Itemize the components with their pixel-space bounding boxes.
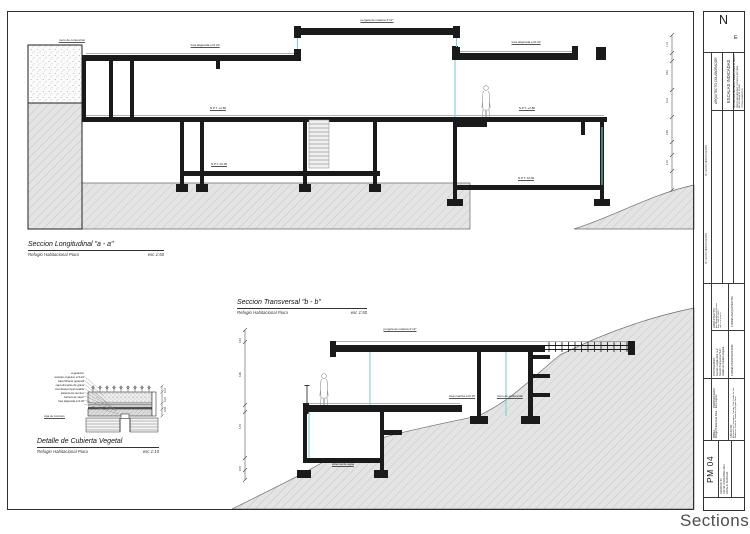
drawing-title: Seccion Longitudinal "a - a" [28,241,164,251]
tb-divider [722,52,723,283]
dim-value: 2.15 [666,156,669,170]
annotation: pergola de madera 2"x2" [361,19,394,23]
drawing-scale: esc 1:50 [148,252,164,257]
scales-label: ESCALAS INDICADAS [726,54,731,108]
dim-value: 0.10 [164,386,167,395]
dim-value: 0.40 [666,66,669,80]
dim-value: 0.40 [239,334,242,348]
revision-column-header: Nº FECHA MODIFICACIÓN [705,218,708,280]
sheet-number: PM 04 [705,444,715,494]
note-line: NO ESCALAR EL PLANO [739,54,741,108]
tb-divider [728,283,729,440]
drawing-title: Seccion Transversal "b - b" [237,299,367,309]
drawing-scale: esc 1:10 [143,449,159,454]
annotation: pergola de madera 2"x2" [384,328,417,332]
project-block: OBRA: Refugio Habitacional Piura [712,410,718,438]
dim-value: 3.06 [239,368,242,382]
transversal-title: Seccion Transversal "b - b" Refugio Habi… [237,299,367,315]
annotation: cisterna de agua [332,463,354,467]
tb-divider [703,440,744,441]
signature-owner-label: FIRMA PROPIETARIO: [730,331,734,376]
dim-value: 0.70 [239,462,242,476]
tb-divider [703,497,744,498]
drawing-subtitle: Refugio Habitacional Piura [28,252,79,257]
contents-block: CONTENIDO: Seccion Longitudinal "a-a" Se… [712,331,725,376]
drawing-subtitle: Refugio Habitacional Piura [237,310,288,315]
signature-architect-label: FIRMA ARQUITECTO: [730,285,734,327]
drawing-title: Detalle de Cubierta Vegetal [37,438,159,448]
note-line: COTAS EN METROS [742,54,744,108]
annotation: N.P.T. ±0.00 [211,163,227,167]
longitudinal-title: Seccion Longitudinal "a - a" Refugio Hab… [28,241,164,257]
drawing-scale: esc 1:50 [351,310,367,315]
dim-value: 0.15 [164,395,167,404]
dim-value: 2.80 [666,126,669,140]
annotation: muro de contención [497,395,523,399]
page-caption: Sections [680,511,749,531]
tb-divider [711,110,744,111]
detail-title: Detalle de Cubierta Vegetal Refugio Habi… [37,438,159,454]
note-line: LAS MEDIDAS INDICADAS PRIMAN SOBRE EL DI… [734,54,736,108]
annotation: losa aligerada e=0.20 [191,44,220,48]
dim-value: 3.10 [666,94,669,108]
revision-column-header: Nº FECHA MODIFICACIÓN [705,130,708,192]
drawing-frame [7,11,694,510]
annotation: N.P.T. ±0.00 [518,177,534,181]
tb-divider [703,378,744,379]
tb-divider [703,283,744,284]
annotation: N.P.T. +2.80 [210,107,226,111]
dim-value: 4.70 [239,420,242,434]
north-label: N [719,13,728,27]
architectural-sheet: Seccion Longitudinal "a - a" Refugio Hab… [0,0,750,534]
annotation: N.P.T. +2.80 [519,107,535,111]
owner-block: PROPIETARIO: Erica Laplout [712,381,718,408]
drawing-subtitle: Refugio Habitacional Piura [37,449,88,454]
annotation: losa maciza e=0.15 [449,395,475,399]
location-block: UBICACIÓN: Malecon Las Casuarinas, Count… [730,380,737,438]
collaborator-label: ARQUITECTO COLABORADOR [714,54,718,108]
architect-block: ARQUITECTO: Arq. Maria Mazzali Herrera R… [712,285,722,328]
east-label: E [734,35,738,41]
layer-label: losa aligerada e=0.20 [20,401,84,404]
annotation: viga de concreto [44,415,65,419]
tb-divider [703,52,744,53]
annotation: muro de contención [59,39,85,43]
dim-value: 0.30 [164,405,167,414]
annotation: losa aligerada e=0.20 [512,41,541,45]
tb-divider [731,440,732,497]
dim-value: 1.15 [666,38,669,52]
sheet-meta-block: REVISION: 04 FECHA: NOVIEMBRE 2012 ESCAL… [720,444,729,494]
